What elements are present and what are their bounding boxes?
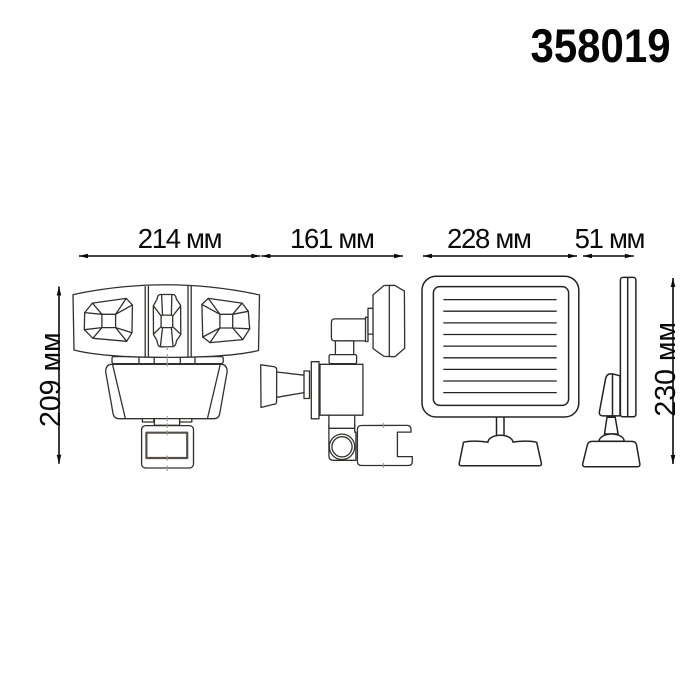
svg-text:228 мм: 228 мм [447, 223, 531, 254]
svg-text:51 мм: 51 мм [575, 223, 645, 254]
svg-text:209 мм: 209 мм [35, 332, 67, 427]
svg-text:230 мм: 230 мм [650, 322, 682, 417]
svg-text:358019: 358019 [530, 20, 670, 73]
svg-text:214 мм: 214 мм [138, 223, 222, 254]
svg-text:161 мм: 161 мм [290, 223, 374, 254]
